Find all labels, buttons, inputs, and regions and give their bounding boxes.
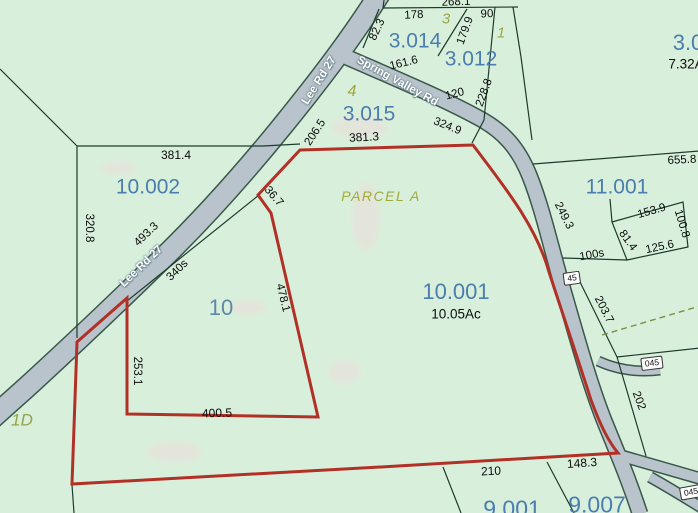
- parcel-number-label[interactable]: 9.001: [483, 498, 541, 513]
- dimension-label: 210: [481, 464, 502, 477]
- dimension-label: 253.1: [130, 357, 142, 386]
- dimension-label: 381.4: [161, 149, 191, 161]
- parcel-map-canvas[interactable]: 10.0023.0143.0123.01510.00111.0013.09.00…: [0, 0, 698, 513]
- dimension-label: 655.8: [667, 155, 696, 168]
- dimension-label: 90: [480, 9, 493, 21]
- map-artifact-blob: [230, 300, 266, 315]
- parcel-number-label[interactable]: 11.001: [586, 177, 649, 198]
- parcel-number-label[interactable]: 10.001: [422, 281, 489, 303]
- parcel-number-label[interactable]: 3.0: [673, 32, 698, 54]
- dimension-label: 268.1: [441, 0, 470, 9]
- dimension-label: 148.3: [567, 456, 598, 470]
- parcel-number-label[interactable]: 10.002: [116, 177, 180, 198]
- easement-dashed-line: [602, 306, 698, 335]
- route-shield: 045: [640, 355, 664, 370]
- route-shield: 45: [562, 271, 581, 286]
- zone-label: PARCEL A: [341, 189, 420, 203]
- zone-label: 1: [497, 26, 505, 41]
- map-artifact-blob: [100, 162, 136, 175]
- parcel-area-label: 10.05Ac: [431, 307, 481, 321]
- parcel-number-label[interactable]: 3.014: [389, 31, 442, 52]
- zone-label: 4: [348, 84, 357, 100]
- map-artifact-blob: [146, 442, 202, 462]
- parcel-number-label[interactable]: 3.012: [445, 49, 498, 70]
- parcel-area-label: 7.32A: [668, 57, 698, 71]
- parcel-number-label[interactable]: 10: [209, 297, 233, 319]
- zone-label: 3: [442, 12, 450, 27]
- dimension-label: 178: [404, 10, 424, 22]
- dimension-label: 381.3: [349, 130, 380, 144]
- zone-label: 1D: [11, 412, 33, 429]
- map-artifact-blob: [328, 360, 360, 384]
- dimension-label: 320.8: [82, 214, 94, 243]
- parcel-number-label[interactable]: 9.007: [568, 494, 626, 513]
- parcel-number-label[interactable]: 3.015: [343, 104, 396, 125]
- dimension-label: 400.5: [202, 406, 232, 419]
